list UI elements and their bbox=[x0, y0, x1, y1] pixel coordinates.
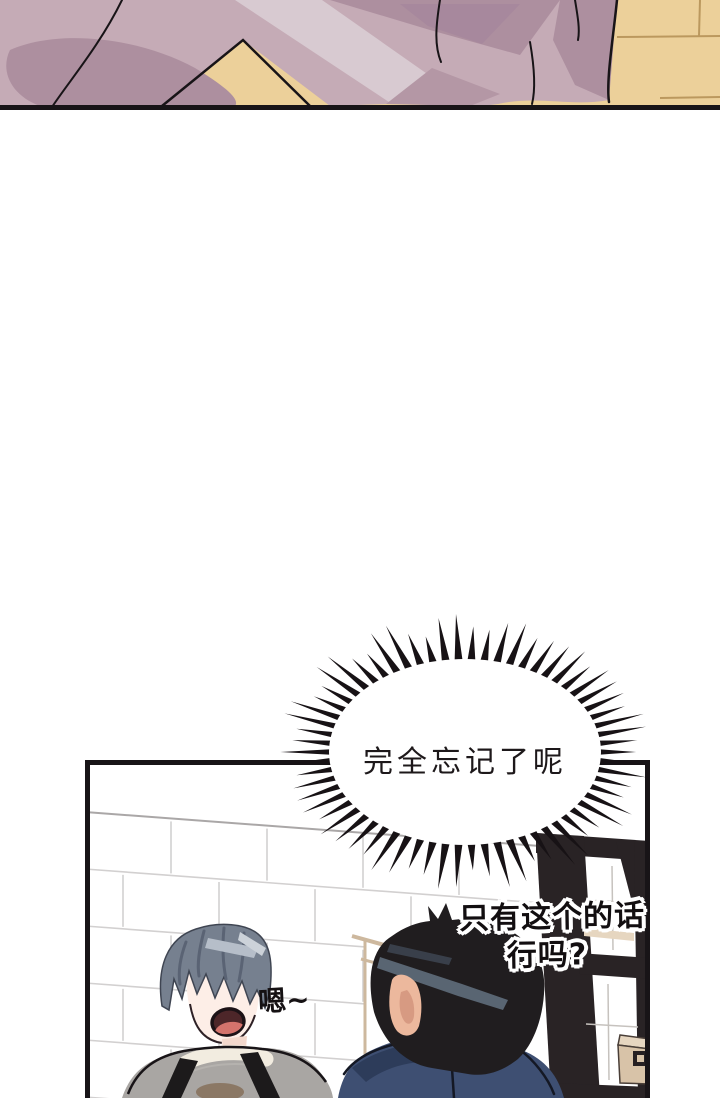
burst-bubble-text: 完全忘记了呢 bbox=[245, 582, 685, 922]
burst-speech-bubble: 完全忘记了呢 bbox=[245, 582, 685, 922]
comic-page: 只有这个的话 行吗? 嗯~ 完全忘记了呢 bbox=[0, 0, 720, 1098]
panel-border-bottom bbox=[0, 105, 720, 110]
shout-text-line2: 行吗? bbox=[472, 929, 623, 976]
reply-text: 嗯~ bbox=[257, 976, 355, 1021]
top-panel-artwork bbox=[0, 0, 720, 110]
